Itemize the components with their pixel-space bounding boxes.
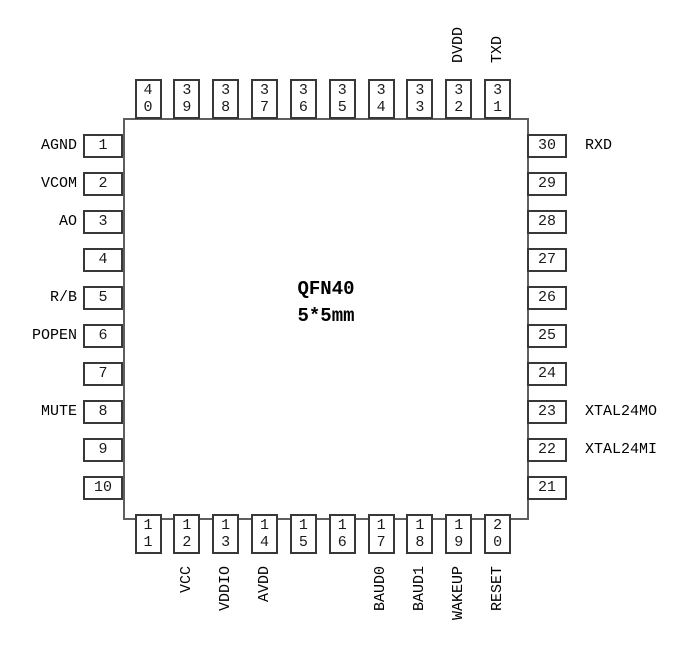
pin-34-box: 3 4 [368, 79, 395, 119]
pin-19-label: WAKEUP [451, 566, 467, 656]
pin-31-label: TXD [490, 36, 506, 63]
pin-22-box: 22 [527, 438, 567, 462]
pin-29-box: 29 [527, 172, 567, 196]
pin-31-box: 3 1 [484, 79, 511, 119]
pin-19-box: 1 9 [445, 514, 472, 554]
pin-5-label: R/B [0, 286, 77, 310]
pin-1-label: AGND [0, 134, 77, 158]
pin-32-box: 3 2 [445, 79, 472, 119]
pin-5-box: 5 [83, 286, 123, 310]
pinout-diagram: QFN405*5mm 1AGND2VCOM3AO45R/B6POPEN78MUT… [0, 0, 700, 656]
pin-24-box: 24 [527, 362, 567, 386]
pin-9-box: 9 [83, 438, 123, 462]
pin-3-label: AO [0, 210, 77, 234]
pin-3-box: 3 [83, 210, 123, 234]
pin-23-box: 23 [527, 400, 567, 424]
pin-26-box: 26 [527, 286, 567, 310]
chip-title-block: QFN405*5mm [125, 276, 527, 330]
pin-11-box: 1 1 [135, 514, 162, 554]
pin-16-box: 1 6 [329, 514, 356, 554]
pin-12-box: 1 2 [173, 514, 200, 554]
pin-38-box: 3 8 [212, 79, 239, 119]
pin-6-box: 6 [83, 324, 123, 348]
pin-18-box: 1 8 [406, 514, 433, 554]
chip-body: QFN405*5mm [123, 118, 529, 520]
pin-25-box: 25 [527, 324, 567, 348]
pin-22-label: XTAL24MI [585, 438, 657, 462]
pin-13-label: VDDIO [218, 566, 234, 656]
pin-33-box: 3 3 [406, 79, 433, 119]
pin-36-box: 3 6 [290, 79, 317, 119]
pin-8-box: 8 [83, 400, 123, 424]
pin-28-box: 28 [527, 210, 567, 234]
pin-17-label: BAUD0 [373, 566, 389, 656]
pin-1-box: 1 [83, 134, 123, 158]
pin-20-label: RESET [490, 566, 506, 656]
pin-13-box: 1 3 [212, 514, 239, 554]
pin-20-box: 2 0 [484, 514, 511, 554]
chip-package-size: 5*5mm [125, 303, 527, 330]
pin-39-box: 3 9 [173, 79, 200, 119]
pin-17-box: 1 7 [368, 514, 395, 554]
pin-30-box: 30 [527, 134, 567, 158]
pin-4-box: 4 [83, 248, 123, 272]
pin-40-box: 4 0 [135, 79, 162, 119]
pin-10-box: 10 [83, 476, 123, 500]
pin-14-label: AVDD [257, 566, 273, 656]
pin-8-label: MUTE [0, 400, 77, 424]
pin-12-label: VCC [179, 566, 195, 656]
pin-23-label: XTAL24MO [585, 400, 657, 424]
pin-2-label: VCOM [0, 172, 77, 196]
pin-27-box: 27 [527, 248, 567, 272]
pin-7-box: 7 [83, 362, 123, 386]
pin-15-box: 1 5 [290, 514, 317, 554]
pin-6-label: POPEN [0, 324, 77, 348]
pin-2-box: 2 [83, 172, 123, 196]
pin-37-box: 3 7 [251, 79, 278, 119]
pin-35-box: 3 5 [329, 79, 356, 119]
pin-30-label: RXD [585, 134, 612, 158]
pin-21-box: 21 [527, 476, 567, 500]
pin-18-label: BAUD1 [412, 566, 428, 656]
pin-14-box: 1 4 [251, 514, 278, 554]
chip-package-name: QFN40 [125, 276, 527, 303]
pin-32-label: DVDD [451, 27, 467, 63]
